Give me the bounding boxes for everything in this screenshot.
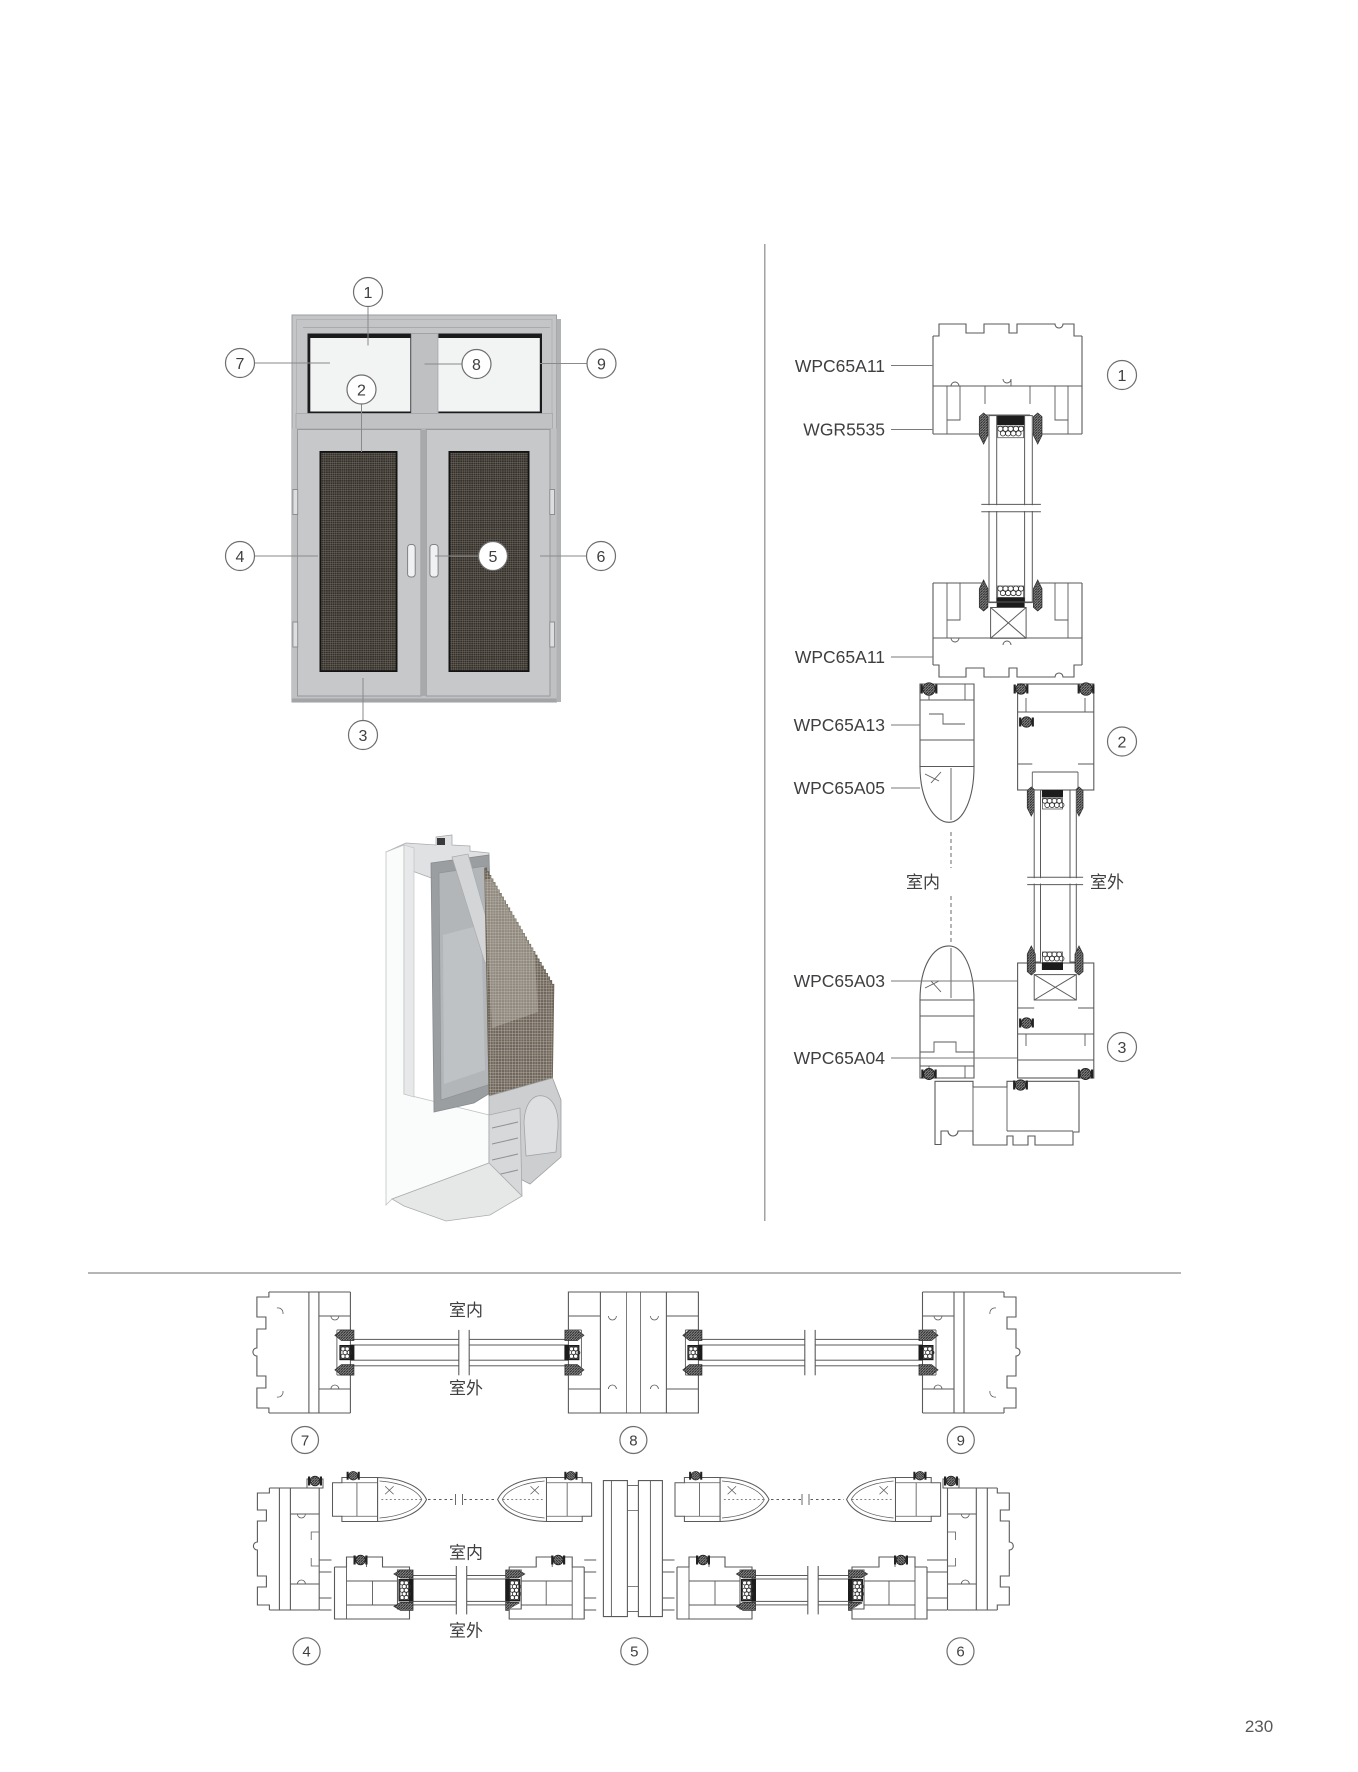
- svg-text:WGR5535: WGR5535: [803, 420, 885, 440]
- svg-text:7: 7: [301, 1432, 309, 1449]
- svg-text:室外: 室外: [449, 1621, 483, 1640]
- svg-text:WPC65A04: WPC65A04: [794, 1048, 886, 1068]
- svg-text:8: 8: [629, 1432, 637, 1449]
- svg-text:室内: 室内: [906, 873, 940, 892]
- svg-text:室外: 室外: [1090, 873, 1124, 892]
- svg-text:室外: 室外: [449, 1379, 483, 1398]
- svg-text:9: 9: [597, 356, 606, 373]
- svg-text:WPC65A13: WPC65A13: [794, 715, 885, 735]
- svg-text:230: 230: [1245, 1717, 1273, 1736]
- svg-text:WPC65A11: WPC65A11: [795, 647, 885, 667]
- svg-text:5: 5: [630, 1644, 638, 1661]
- svg-text:6: 6: [597, 549, 606, 566]
- svg-text:4: 4: [236, 549, 245, 566]
- svg-text:3: 3: [1118, 1040, 1127, 1057]
- svg-text:5: 5: [489, 549, 498, 566]
- svg-text:室内: 室内: [449, 1301, 483, 1320]
- svg-text:室内: 室内: [449, 1543, 483, 1562]
- svg-text:3: 3: [359, 728, 368, 745]
- svg-text:1: 1: [364, 285, 373, 302]
- svg-text:WPC65A05: WPC65A05: [794, 778, 885, 798]
- svg-text:WPC65A11: WPC65A11: [795, 356, 885, 376]
- svg-text:9: 9: [957, 1432, 965, 1449]
- svg-text:6: 6: [956, 1644, 964, 1661]
- svg-text:7: 7: [236, 356, 245, 373]
- svg-text:WPC65A03: WPC65A03: [794, 971, 885, 991]
- svg-text:4: 4: [302, 1644, 310, 1661]
- svg-text:2: 2: [357, 382, 366, 399]
- svg-text:8: 8: [472, 357, 481, 374]
- svg-text:2: 2: [1118, 734, 1127, 751]
- svg-text:1: 1: [1118, 368, 1127, 385]
